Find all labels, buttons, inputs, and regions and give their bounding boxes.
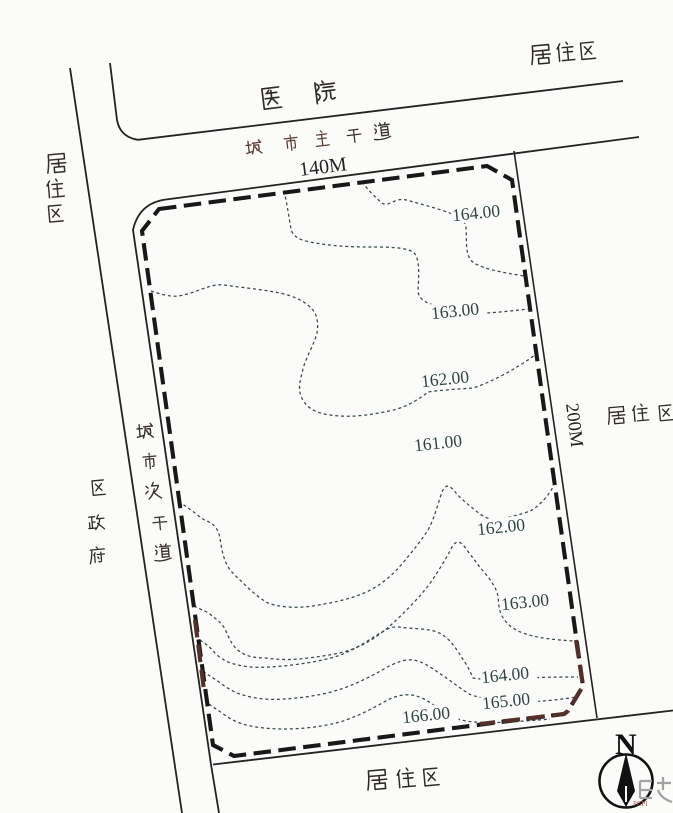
svg-text:PCPI: PCPI xyxy=(633,800,648,808)
